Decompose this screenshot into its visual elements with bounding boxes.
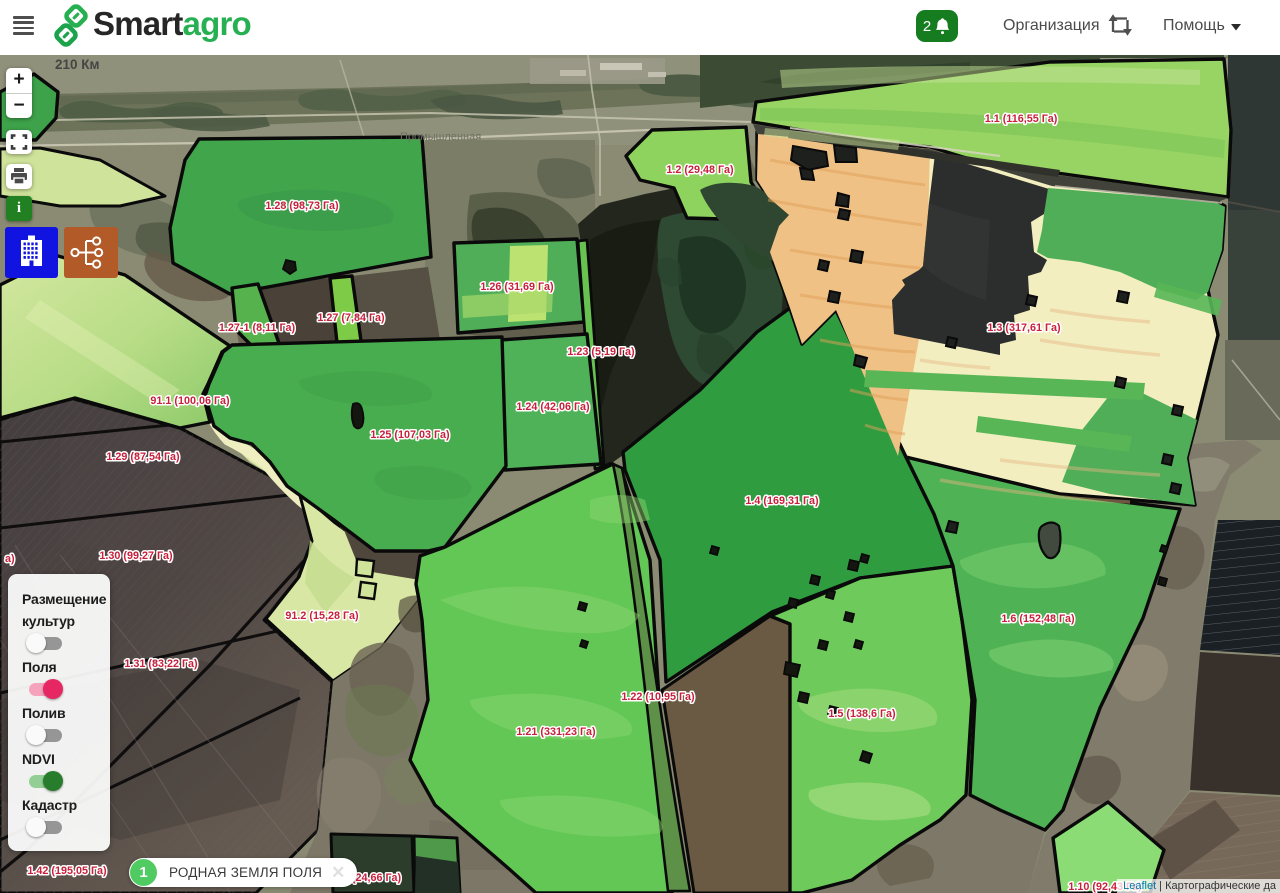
svg-text:1.25 (107,03 Га): 1.25 (107,03 Га) [370,429,450,441]
svg-text:1.31 (83,22 Га): 1.31 (83,22 Га) [124,658,198,670]
svg-text:1.30 (99,27 Га): 1.30 (99,27 Га) [99,550,173,562]
svg-text:1.22 (10,95 Га): 1.22 (10,95 Га) [621,691,695,703]
svg-text:1.28 (98,73 Га): 1.28 (98,73 Га) [265,200,339,212]
svg-text:1.27-1 (8,11 Га): 1.27-1 (8,11 Га) [219,322,296,334]
svg-text:1.26 (31,69 Га): 1.26 (31,69 Га) [480,281,554,293]
svg-text:1.6 (152,48 Га): 1.6 (152,48 Га) [1001,613,1075,625]
svg-text:1.5 (138,6 Га): 1.5 (138,6 Га) [828,708,896,720]
svg-text:1.1 (116,55 Га): 1.1 (116,55 Га) [985,113,1058,125]
svg-text:1.2 (29,48 Га): 1.2 (29,48 Га) [666,164,734,176]
svg-text:1.3 (317,61 Га): 1.3 (317,61 Га) [987,322,1061,334]
svg-text:91.1 (100,06 Га): 91.1 (100,06 Га) [150,395,230,407]
svg-text:1.21 (331,23 Га): 1.21 (331,23 Га) [516,726,596,738]
svg-text:91.2 (15,28 Га): 91.2 (15,28 Га) [285,610,359,622]
svg-text:1.4 (169,31 Га): 1.4 (169,31 Га) [745,495,819,507]
svg-text:1.24 (42,06 Га): 1.24 (42,06 Га) [516,401,590,413]
svg-text:210 Км: 210 Км [55,57,100,72]
svg-text:1.23 (5,19 Га): 1.23 (5,19 Га) [567,346,635,358]
svg-text:а): а) [5,553,15,565]
svg-text:1.29 (87,54 Га): 1.29 (87,54 Га) [106,451,180,463]
svg-text:1.42 (195,05 Га): 1.42 (195,05 Га) [27,865,107,877]
svg-text:1.27 (7,84 Га): 1.27 (7,84 Га) [317,312,385,324]
svg-text:Промышленная: Промышленная [400,131,481,143]
